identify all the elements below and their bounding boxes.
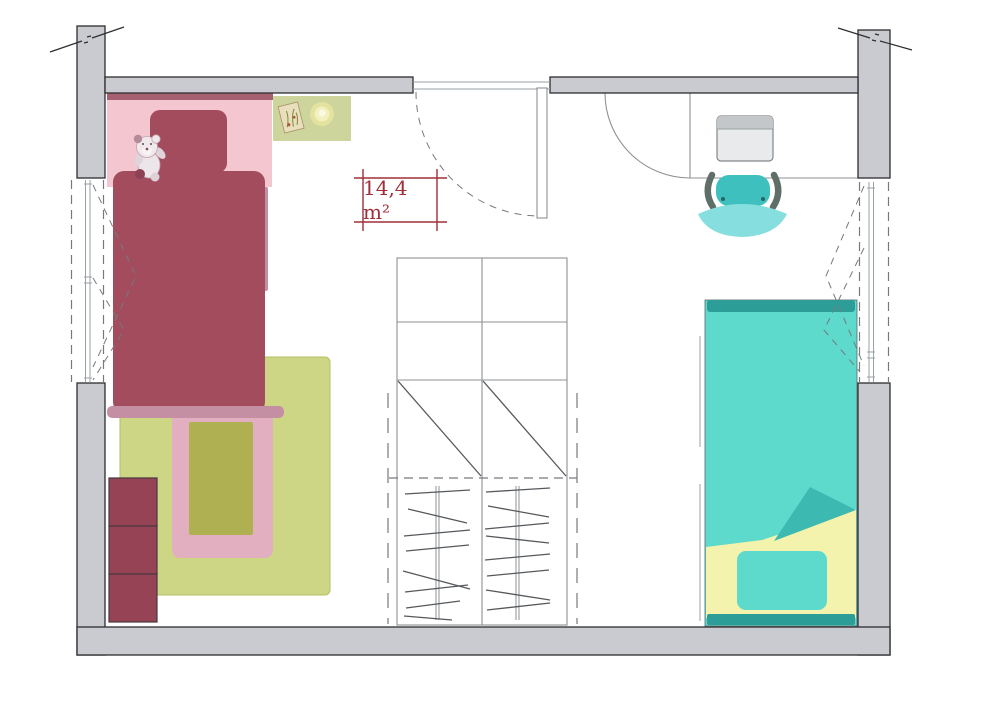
desk [605, 93, 858, 237]
nightstand [273, 96, 351, 141]
monitor-icon [717, 116, 773, 161]
drawer-stack [109, 478, 157, 622]
hangers-right [485, 488, 550, 610]
door-leaf [537, 88, 547, 218]
desk-chair [698, 175, 787, 237]
area-label: 14,4 m² [363, 180, 437, 220]
lamp-icon [310, 102, 334, 126]
floor-plan-drawing [0, 0, 1000, 707]
wardrobe [388, 258, 577, 625]
bed-pink [107, 92, 284, 418]
bed-teal [700, 300, 857, 626]
floor-plan: 14,4 m² [0, 0, 1000, 707]
